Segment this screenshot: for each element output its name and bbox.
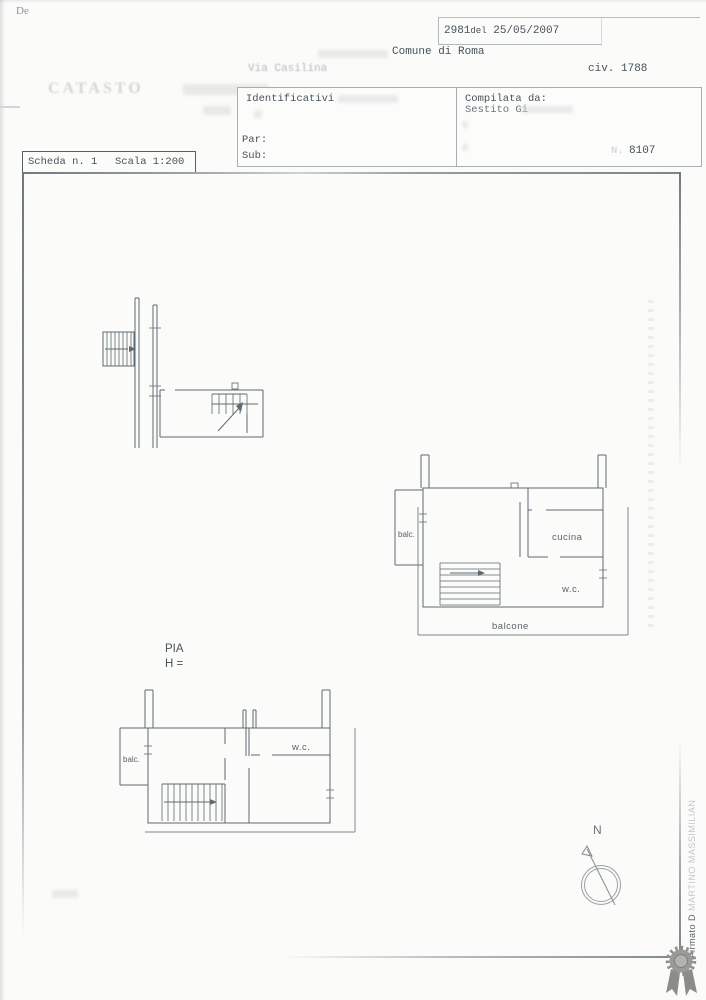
civico-number: civ. 1788 bbox=[588, 63, 647, 75]
scan-mark bbox=[0, 106, 20, 108]
compilata-name: Sestito Gi bbox=[465, 104, 528, 116]
watermark-text: CATASTO bbox=[48, 80, 144, 97]
floor-plan-ground bbox=[95, 288, 275, 453]
protocol-date: 25/05/2007 bbox=[493, 25, 559, 37]
sheet-border-left bbox=[22, 172, 24, 937]
identificativi-smudge bbox=[338, 95, 398, 103]
comune-faded-prefix bbox=[318, 50, 388, 58]
scala-label: Scala 1:200 bbox=[115, 156, 184, 168]
label-wc-upper: w.c. bbox=[561, 584, 580, 595]
scan-smudge bbox=[52, 890, 78, 898]
faint-vertical-text bbox=[648, 300, 654, 630]
seal-ribbon-icon bbox=[654, 942, 706, 1000]
cadastral-sheet: De CATASTO 2981del 25/05/2007 Comune di … bbox=[0, 0, 706, 1000]
compass-north-label: N bbox=[593, 823, 602, 837]
compass-icon bbox=[575, 843, 631, 913]
signature-faint: MARTINO MASSIMILIAN bbox=[687, 800, 697, 911]
protocol-box: 2981del 25/05/2007 bbox=[438, 17, 602, 45]
floor-plan-upper: balc. cucina w.c. balcone bbox=[392, 452, 638, 640]
sheet-border-top bbox=[22, 172, 681, 174]
street-name: Via Casilina bbox=[248, 63, 327, 75]
floor-plan-lower: balc. w.c. bbox=[112, 686, 362, 848]
protocol-number: 2981 bbox=[444, 25, 470, 37]
particella-label: Par: bbox=[242, 134, 267, 146]
label-balcone: balcone bbox=[492, 621, 529, 632]
scheda-box: Scheda n. 1 Scala 1:200 bbox=[22, 151, 196, 173]
signature-vertical-text: Firmato D MARTINO MASSIMILIAN bbox=[687, 800, 697, 958]
corner-mark: De bbox=[16, 5, 29, 17]
header-table: Identificativi Par: Sub: Compilata da: S… bbox=[237, 87, 702, 167]
subalterno-label: Sub: bbox=[242, 150, 267, 162]
identificativi-label: Identificativi bbox=[246, 93, 334, 105]
scheda-label: Scheda n. 1 bbox=[28, 156, 97, 168]
compilata-name-smudge bbox=[521, 106, 573, 113]
label-wc-lower: w.c. bbox=[291, 742, 310, 753]
plan-caption: PIA H = bbox=[165, 642, 184, 672]
plan-caption-line1: PIA bbox=[165, 642, 184, 657]
label-balc-upper: balc. bbox=[398, 530, 415, 539]
protocol-del: del bbox=[470, 26, 486, 36]
plan-caption-line2: H = bbox=[165, 657, 184, 672]
row-mark-2 bbox=[462, 144, 468, 151]
watermark-submark bbox=[203, 106, 231, 115]
identificativi-value-smudge bbox=[254, 110, 262, 118]
protocol-topline bbox=[438, 17, 700, 18]
comune-line: Comune di Roma bbox=[392, 46, 484, 58]
sheet-number-label: N. bbox=[611, 145, 624, 157]
sheet-number: 8107 bbox=[629, 145, 655, 157]
label-cucina: cucina bbox=[552, 532, 583, 543]
label-balc-lower: balc. bbox=[123, 755, 140, 764]
catasto-watermark: CATASTO bbox=[48, 80, 144, 98]
sheet-border-right bbox=[679, 172, 681, 958]
sheet-border-bottom bbox=[280, 956, 681, 958]
scan-edge-shadow-left bbox=[0, 0, 5, 1000]
row-mark-1 bbox=[462, 121, 468, 128]
table-divider bbox=[456, 88, 457, 166]
scan-edge-shadow-top bbox=[0, 0, 706, 3]
